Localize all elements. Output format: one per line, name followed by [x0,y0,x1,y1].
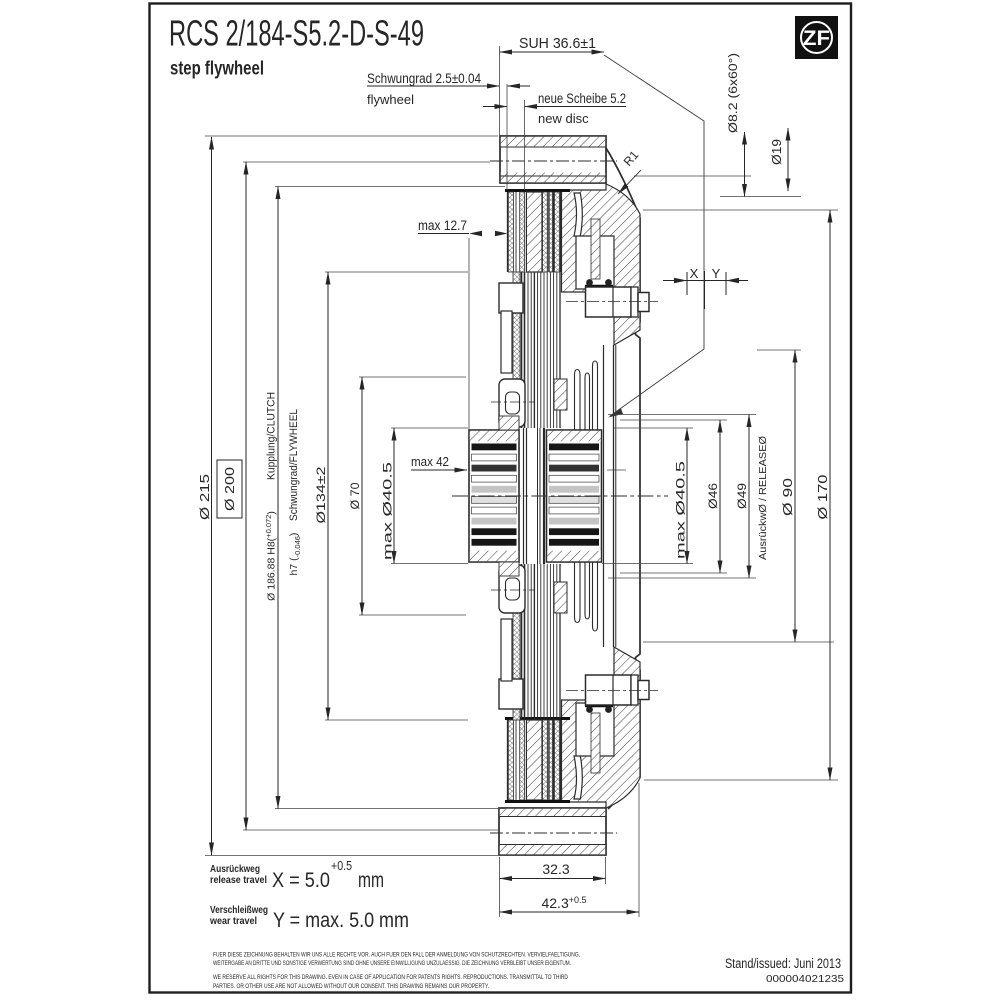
svg-text:max 42: max 42 [411,454,449,469]
svg-text:Ø19: Ø19 [770,139,784,165]
svg-text:Ø 215: Ø 215 [197,474,212,520]
svg-text:SUH 36.6±1: SUH 36.6±1 [519,35,596,52]
svg-text:neue Scheibe 5.2: neue Scheibe 5.2 [538,91,626,106]
svg-text:X = 5.0: X = 5.0 [272,869,330,892]
svg-text:max Ø40.5: max Ø40.5 [674,460,688,559]
svg-text:Schwungrad/FLYWHEEL: Schwungrad/FLYWHEEL [288,409,300,521]
svg-text:Kupplung/CLUTCH: Kupplung/CLUTCH [266,392,278,480]
svg-text:Ø49: Ø49 [735,483,749,509]
svg-text:Verschleißweg: Verschleißweg [210,905,268,916]
svg-text:000004021235: 000004021235 [766,973,844,985]
svg-text:WEITERGABE AN DRITTE UND SONST: WEITERGABE AN DRITTE UND SONSTIGE VERWER… [213,960,571,967]
svg-text:AusrückwØ / RELEASEØ: AusrückwØ / RELEASEØ [757,436,769,560]
svg-text:FUER DIESE ZEICHNUNG BEHALTEN: FUER DIESE ZEICHNUNG BEHALTEN WIR UNS AL… [213,952,580,959]
svg-text:32.3: 32.3 [542,861,569,877]
svg-text:step flywheel: step flywheel [170,59,264,80]
svg-text:Ø134±2: Ø134±2 [314,466,328,523]
svg-text:Ø 70: Ø 70 [348,482,362,509]
svg-text:release travel: release travel [210,875,267,886]
svg-text:flywheel: flywheel [367,92,414,107]
svg-text:wear travel: wear travel [209,916,257,927]
svg-text:Stand/issued: Juni 2013: Stand/issued: Juni 2013 [725,956,841,971]
svg-text:mm: mm [358,869,384,892]
svg-text:max Ø40.5: max Ø40.5 [381,461,395,560]
svg-text:ZF: ZF [803,27,830,50]
svg-text:X: X [690,266,699,281]
svg-text:Y: Y [712,266,721,281]
svg-text:Ø 170: Ø 170 [816,474,830,519]
svg-text:Ø8.2 (6x60°): Ø8.2 (6x60°) [728,53,740,133]
svg-text:Y = max. 5.0 mm: Y = max. 5.0 mm [273,909,409,932]
svg-text:Ausrückweg: Ausrückweg [210,864,260,875]
svg-text:WE RESERVE ALL RIGHTS FOR THIS: WE RESERVE ALL RIGHTS FOR THIS DRAWING. … [213,974,568,981]
svg-text:Ø 90: Ø 90 [781,478,795,516]
svg-text:new disc: new disc [538,111,589,126]
svg-text:Ø46: Ø46 [706,483,720,509]
svg-text:Schwungrad 2.5±0.04: Schwungrad 2.5±0.04 [367,71,481,86]
svg-text:Ø 200: Ø 200 [222,467,237,511]
svg-text:PARTIES. OR OTHER USE ARE NOT: PARTIES. OR OTHER USE ARE NOT ALLOWED WI… [213,983,489,990]
svg-text:max 12.7: max 12.7 [418,218,467,233]
svg-text:RCS 2/184-S5.2-D-S-49: RCS 2/184-S5.2-D-S-49 [169,13,424,54]
svg-text:+0.5: +0.5 [331,859,352,873]
